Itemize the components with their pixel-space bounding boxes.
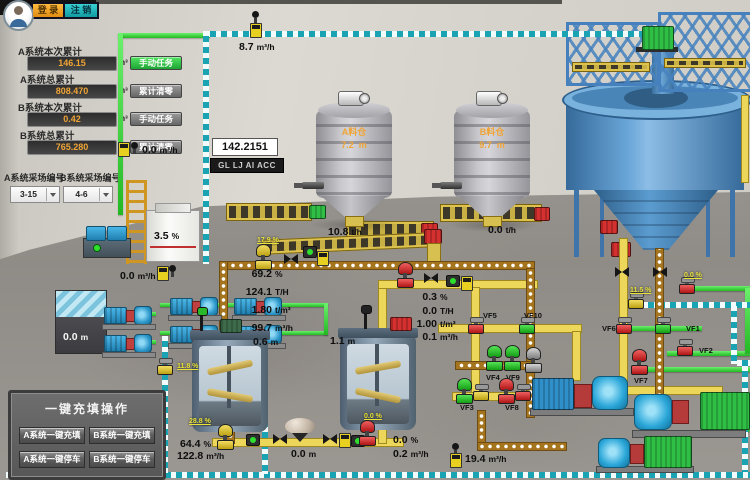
slurry-feed-valve[interactable] bbox=[254, 244, 272, 270]
b-system-stop-button[interactable]: B系统一键停车 bbox=[89, 451, 155, 468]
conveyor-a-rate: 10.8t/h bbox=[328, 226, 362, 238]
thickener-leg bbox=[706, 195, 710, 257]
silo-body bbox=[316, 110, 392, 198]
pipe-fill-water bbox=[731, 306, 737, 364]
total-a-cumulative-value[interactable]: 808.470 bbox=[27, 84, 117, 99]
user-avatar[interactable] bbox=[3, 0, 34, 31]
tank1-level: 0.6m bbox=[253, 336, 278, 348]
valve-vf9[interactable] bbox=[503, 345, 521, 371]
vf2-label: VF2 bbox=[699, 346, 713, 355]
pump-casing bbox=[592, 376, 628, 410]
right-control-valve[interactable] bbox=[628, 294, 644, 309]
pool-water-surface bbox=[56, 291, 106, 317]
valve-spare[interactable] bbox=[524, 347, 542, 373]
run-status-sensor-icon bbox=[246, 434, 260, 446]
pump-casing bbox=[598, 438, 630, 468]
level-sensor-green-icon bbox=[197, 307, 208, 316]
pipe-slurry-yellow bbox=[741, 95, 749, 183]
bridge-walkway bbox=[572, 62, 650, 72]
tank1-discharge-valve[interactable] bbox=[216, 424, 234, 450]
manual-valve-icon bbox=[424, 272, 438, 284]
silo-b-label: B料仓 9.7 m bbox=[454, 126, 530, 152]
flow-gauge-icon bbox=[130, 142, 139, 154]
slurry-control-valve[interactable] bbox=[358, 420, 376, 446]
site-b-select[interactable]: 4-6 bbox=[63, 186, 113, 203]
fill-pump bbox=[170, 294, 220, 320]
login-button[interactable]: 登 录 bbox=[33, 4, 63, 17]
line-b-density: 1.00t/m³ bbox=[405, 318, 456, 330]
feed-conveyor-a-upper bbox=[226, 203, 312, 221]
silo-body bbox=[454, 110, 530, 198]
line-a-flow: 99.7m³/h bbox=[236, 322, 293, 334]
line-b-concentration: 0.3% bbox=[405, 291, 448, 303]
pipe-slurry-yellow bbox=[619, 238, 628, 392]
pump-station-flow: 0.0m³/h bbox=[120, 270, 156, 282]
underflow-concentration: 64.4% bbox=[180, 438, 211, 450]
underflow-flow: 122.8m³/h bbox=[177, 450, 224, 462]
level-sensor-black-icon bbox=[361, 305, 372, 314]
valve-opening-label: 11.5 % bbox=[630, 287, 651, 294]
tank-window bbox=[347, 344, 409, 424]
drain-flow: 19.4m³/h bbox=[465, 453, 506, 465]
manual-valve-icon bbox=[323, 433, 337, 445]
manual-valve-icon bbox=[615, 266, 629, 278]
flow-sensor-icon bbox=[450, 453, 462, 468]
vf10-label: VF10 bbox=[524, 311, 542, 320]
tank2-level: 1.1m bbox=[330, 335, 355, 347]
silo-b: B料仓 9.7 m bbox=[454, 102, 530, 226]
panel-title: 一键充填操作 bbox=[11, 400, 163, 417]
flocculant-tank-level: 3.5% bbox=[154, 230, 179, 242]
run-status-sensor-icon bbox=[303, 246, 317, 258]
pool-level: 0.0m bbox=[63, 331, 88, 343]
valve-vf3[interactable] bbox=[455, 378, 473, 404]
thickener-leg bbox=[574, 185, 579, 257]
pipe-clear-water bbox=[324, 303, 328, 335]
site-a-label: A系统采场编号 bbox=[4, 171, 65, 184]
valve-vf8[interactable] bbox=[497, 378, 515, 404]
rake-drive-motor bbox=[642, 26, 674, 50]
feed-hopper bbox=[285, 418, 315, 443]
reset-total-a-button[interactable]: 累计清零 bbox=[130, 84, 182, 98]
one-key-fill-panel: 一键充填操作 A系统一键充填 B系统一键充填 A系统一键停车 B系统一键停车 bbox=[8, 390, 166, 480]
sensor-icon bbox=[317, 251, 329, 266]
dosing-skid bbox=[83, 238, 131, 258]
manual-task-a-button[interactable]: 手动任务 bbox=[130, 56, 182, 70]
a-system-stop-button[interactable]: A系统一键停车 bbox=[19, 451, 85, 468]
manual-valve-icon bbox=[653, 266, 667, 278]
total-a-current-value[interactable]: 146.15 bbox=[27, 56, 117, 71]
valve-ball[interactable] bbox=[515, 386, 531, 401]
line-a-concentration: 69.2% bbox=[236, 268, 283, 280]
flow-gauge-icon bbox=[168, 265, 177, 277]
logout-button[interactable]: 注 销 bbox=[65, 4, 97, 17]
pipe-slurry-yellow bbox=[572, 331, 581, 381]
flow-sensor-icon bbox=[118, 142, 130, 157]
silo-cone bbox=[321, 196, 387, 218]
conveyor-motor bbox=[424, 229, 442, 244]
flow-gauge-icon bbox=[251, 11, 260, 23]
water-pump bbox=[104, 331, 154, 357]
water-pool bbox=[55, 290, 107, 354]
pipe-fill-water bbox=[203, 31, 209, 264]
hopper-level: 0.0m bbox=[291, 448, 316, 460]
sensor-icon bbox=[339, 433, 351, 448]
valve-opening-label: 0.0 % bbox=[364, 413, 382, 420]
vf8-label: VF8 bbox=[505, 403, 519, 412]
dosing-pump bbox=[107, 226, 127, 241]
valve-opening-label: 0.0 % bbox=[684, 272, 702, 279]
silo-cone bbox=[459, 196, 525, 218]
water-pump bbox=[104, 303, 154, 329]
pump-casing bbox=[634, 394, 672, 430]
tank-level-line bbox=[150, 246, 196, 248]
total-b-cumulative-value[interactable]: 765.280 bbox=[27, 140, 117, 155]
line-a-tonnage: 124.1T/H bbox=[236, 286, 289, 298]
line-b-tonnage: 0.0T/H bbox=[405, 305, 454, 317]
flow-sensor-icon bbox=[250, 23, 262, 38]
dosing-pump bbox=[86, 226, 106, 241]
left-pipe-flow: 0.0m³/h bbox=[142, 144, 178, 156]
thickener-feed-pump bbox=[600, 220, 618, 234]
silo-blower-icon bbox=[338, 91, 364, 106]
run-lamp bbox=[93, 244, 101, 252]
pump-coupling bbox=[672, 400, 689, 424]
sensor-icon bbox=[461, 276, 473, 291]
thickener-bridge-right bbox=[658, 12, 750, 92]
line-a-density: 1.80t/m³ bbox=[236, 304, 291, 316]
run-status-sensor-icon bbox=[446, 275, 460, 287]
line-c-concentration: 0.0% bbox=[393, 434, 418, 446]
valve-opening-label: 28.8 % bbox=[189, 418, 211, 425]
a-system-fill-button[interactable]: A系统一键充填 bbox=[19, 427, 85, 444]
valve-vf4[interactable] bbox=[485, 345, 503, 371]
pipe-slurry-yellow bbox=[438, 324, 582, 333]
line-c-flow: 0.2m³/h bbox=[393, 448, 429, 460]
thickener-leg bbox=[730, 185, 735, 257]
manual-task-b-button[interactable]: 手动任务 bbox=[130, 112, 182, 126]
vf1-label: VF1 bbox=[686, 324, 700, 333]
silo-a: A料仓 7.2 m bbox=[316, 102, 392, 226]
silo-a-label: A料仓 7.2 m bbox=[316, 126, 392, 152]
pipe-slurry-dotted bbox=[477, 442, 567, 451]
scada-fill-station-screen: 登 录 注 销 A系统本次累计 146.15 m³ 手动任务 A系统总累计 80… bbox=[0, 0, 750, 480]
pipe-clear-water bbox=[118, 33, 123, 215]
pipe-clear-water bbox=[695, 286, 750, 291]
site-b-label: B系统采场编号 bbox=[60, 171, 121, 184]
left-wall bbox=[0, 0, 20, 262]
valve-vf1[interactable] bbox=[655, 319, 671, 334]
valve-ball[interactable] bbox=[473, 386, 489, 401]
pump-coupling bbox=[574, 384, 592, 408]
conveyor-b-rate: 0.0t/h bbox=[488, 224, 516, 236]
pump-coupling bbox=[630, 444, 644, 464]
thickener bbox=[558, 0, 750, 262]
vf7-label: VF7 bbox=[634, 376, 648, 385]
fill-pump-motor bbox=[700, 392, 750, 430]
silo-aeration-nozzle-icon bbox=[440, 182, 462, 189]
vf3-label: VF3 bbox=[460, 403, 474, 412]
total-b-current-value[interactable]: 0.42 bbox=[27, 112, 117, 127]
vf5-label: VF5 bbox=[483, 311, 497, 320]
manual-valve-icon bbox=[284, 253, 298, 265]
pipe-clear-water bbox=[745, 288, 750, 353]
fill-pump-motor bbox=[532, 378, 574, 410]
flow-totalizer-display: 142.2151 bbox=[212, 138, 278, 156]
b-system-fill-button[interactable]: B系统一键充填 bbox=[89, 427, 155, 444]
tank1-inlet-valve[interactable] bbox=[157, 360, 173, 375]
tank-window bbox=[199, 346, 261, 426]
silo-aeration-nozzle-icon bbox=[302, 182, 324, 189]
line-b-flow: 0.1m³/h bbox=[405, 331, 458, 343]
vf6-label: VF6 bbox=[602, 324, 616, 333]
valve-vf6[interactable] bbox=[616, 319, 632, 334]
valve-opening-label: 17.9 % bbox=[257, 237, 279, 244]
site-a-select[interactable]: 3-15 bbox=[10, 186, 60, 203]
valve-vf10[interactable] bbox=[519, 319, 535, 334]
plc-tag-display: GL LJ AI ACC bbox=[210, 158, 284, 173]
pipe-fill-water bbox=[205, 31, 642, 37]
valve-vf2[interactable] bbox=[677, 341, 693, 356]
valve-opening-label: 11.8 % bbox=[177, 363, 198, 370]
tank-cap bbox=[155, 203, 191, 213]
right-control-valve[interactable] bbox=[679, 279, 695, 294]
pipe-clear-water bbox=[118, 33, 210, 38]
line-b-control-valve[interactable] bbox=[396, 262, 414, 288]
top-pipe-flow: 8.7m³/h bbox=[239, 41, 275, 53]
fill-pump-motor bbox=[644, 436, 692, 468]
valve-vf5[interactable] bbox=[468, 319, 484, 334]
bridge-walkway bbox=[664, 58, 746, 68]
silo-blower-icon bbox=[476, 91, 502, 106]
valve-vf7[interactable] bbox=[630, 349, 648, 375]
